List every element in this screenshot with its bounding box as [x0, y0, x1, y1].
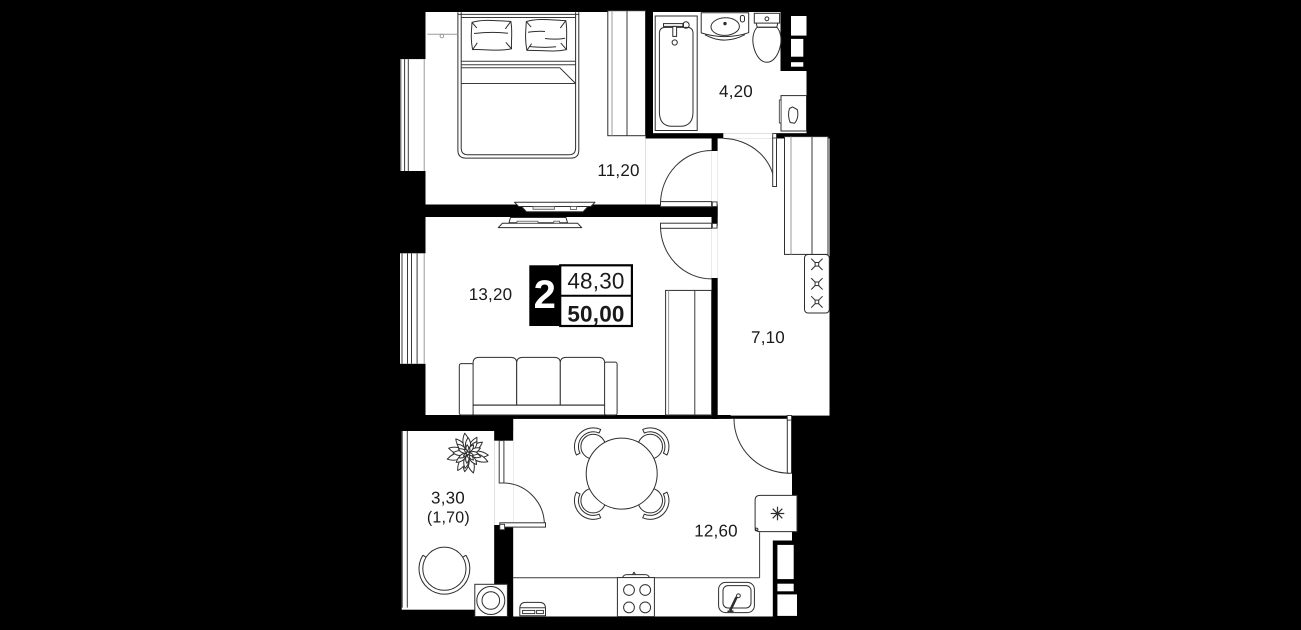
svg-text:7,10: 7,10	[751, 328, 785, 347]
svg-text:50,00: 50,00	[567, 301, 624, 326]
svg-text:12,60: 12,60	[694, 521, 738, 540]
svg-text:(1,70): (1,70)	[427, 510, 470, 527]
svg-text:13,20: 13,20	[469, 285, 513, 304]
svg-text:4,20: 4,20	[719, 82, 753, 101]
svg-text:2: 2	[534, 273, 556, 317]
svg-text:11,20: 11,20	[597, 161, 639, 180]
svg-text:3,30: 3,30	[431, 488, 465, 507]
svg-text:48,30: 48,30	[567, 269, 624, 294]
